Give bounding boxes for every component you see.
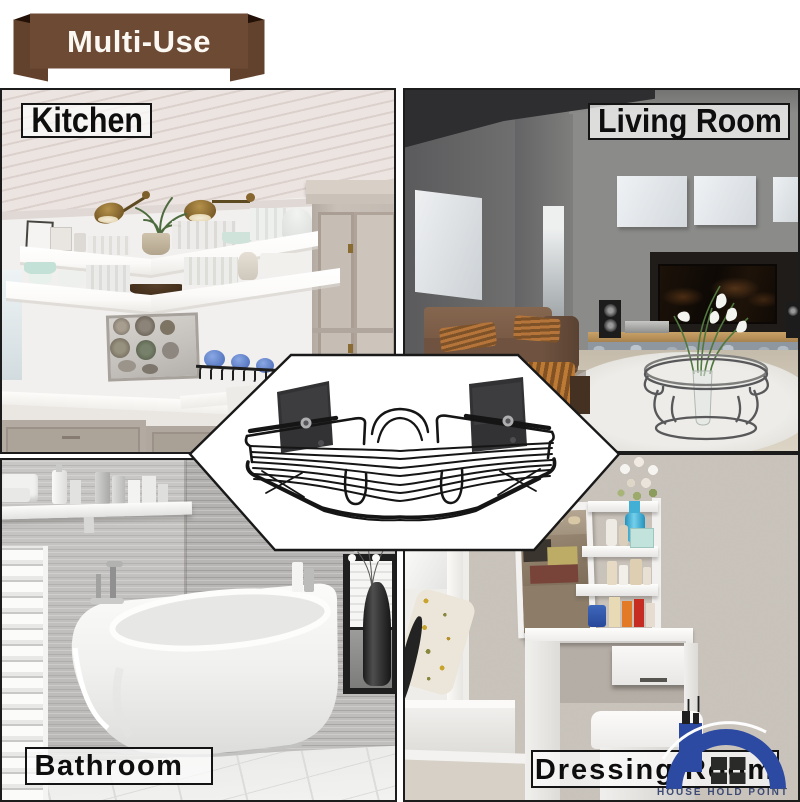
svg-text:HOUSE HOLD POINT: HOUSE HOLD POINT bbox=[657, 787, 789, 798]
svg-text:Multi-Use: Multi-Use bbox=[67, 24, 211, 59]
